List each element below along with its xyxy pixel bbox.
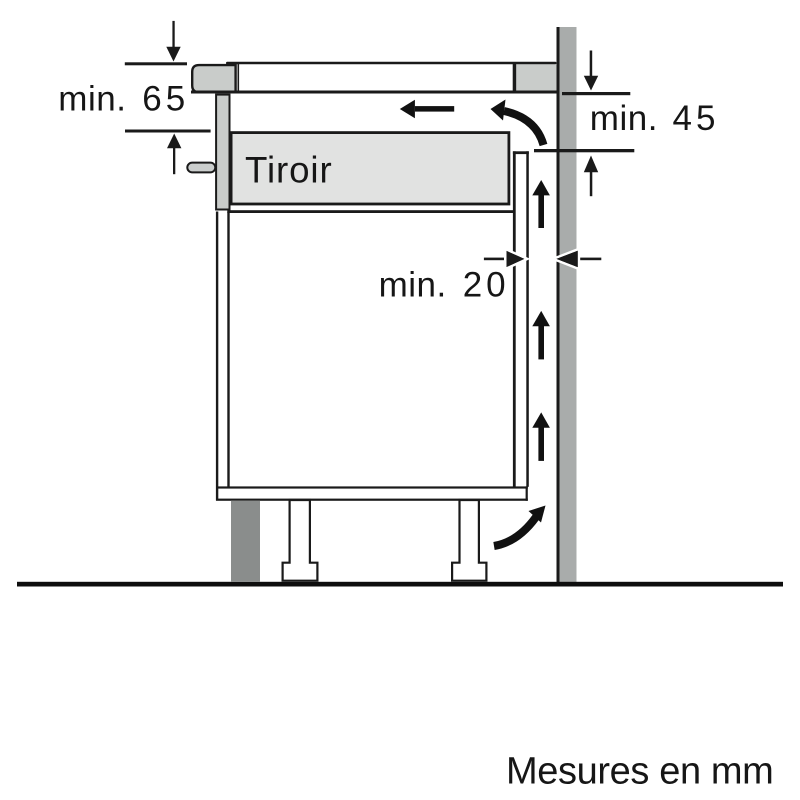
- svg-text:65: 65: [142, 80, 189, 119]
- svg-text:min.: min.: [590, 99, 658, 138]
- svg-text:min.: min.: [379, 266, 447, 305]
- svg-text:45: 45: [673, 99, 720, 138]
- svg-text:Tiroir: Tiroir: [245, 150, 333, 191]
- svg-text:min.: min.: [58, 80, 126, 119]
- svg-text:Mesures en mm: Mesures en mm: [506, 751, 773, 793]
- svg-text:20: 20: [463, 266, 510, 305]
